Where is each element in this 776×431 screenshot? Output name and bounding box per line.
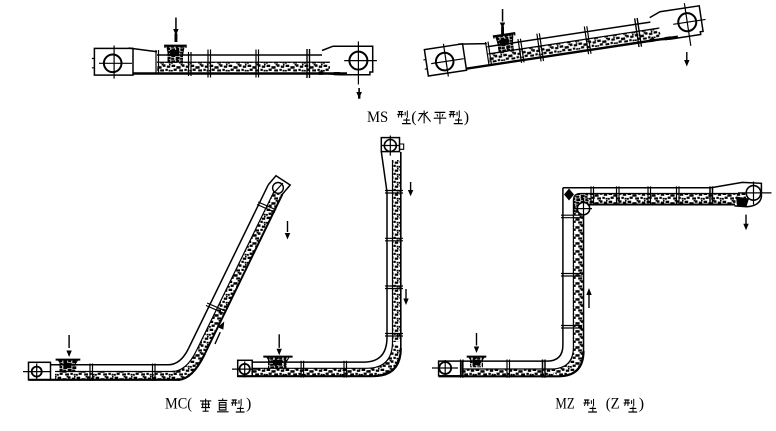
svg-text:MS: MS — [367, 109, 388, 126]
svg-text:MC(: MC( — [165, 396, 192, 413]
svg-text:MZ: MZ — [555, 396, 574, 413]
svg-text:(Z: (Z — [606, 396, 620, 413]
svg-text:(: ( — [411, 109, 416, 126]
svg-text:): ) — [246, 396, 251, 413]
svg-text:): ) — [639, 396, 644, 413]
svg-text:): ) — [464, 109, 469, 126]
